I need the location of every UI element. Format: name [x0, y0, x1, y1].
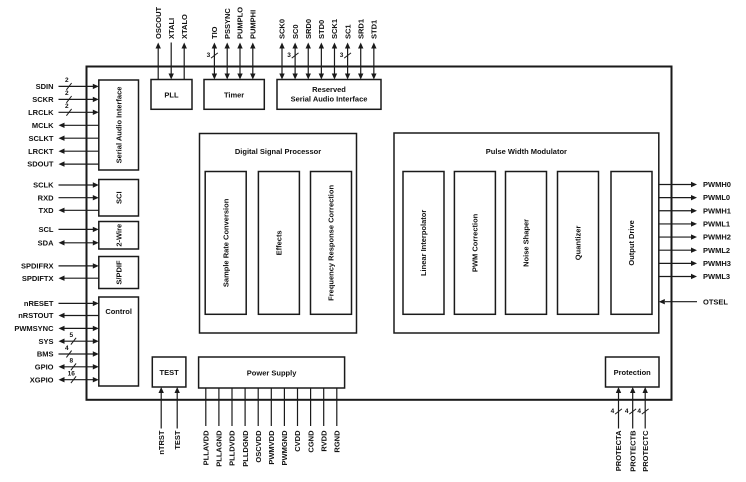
svg-text:OSCVDD: OSCVDD — [254, 430, 263, 463]
svg-text:TIO: TIO — [210, 26, 219, 39]
svg-text:PWML0: PWML0 — [703, 193, 730, 202]
svg-text:OSCOUT: OSCOUT — [154, 6, 163, 39]
svg-text:SDIN: SDIN — [36, 82, 54, 91]
svg-text:Serial Audio Interface: Serial Audio Interface — [114, 87, 123, 164]
svg-text:4: 4 — [65, 345, 69, 352]
svg-text:RXD: RXD — [38, 193, 54, 202]
svg-text:PLLDVDD: PLLDVDD — [228, 430, 237, 466]
svg-text:Control: Control — [105, 307, 132, 316]
svg-text:SC0: SC0 — [291, 24, 300, 39]
svg-text:3: 3 — [340, 52, 344, 59]
svg-text:PWM Correction: PWM Correction — [471, 213, 480, 272]
svg-text:PLLAGND: PLLAGND — [215, 430, 224, 467]
svg-text:PUMPHI: PUMPHI — [249, 10, 258, 39]
svg-text:PLLDGND: PLLDGND — [241, 430, 250, 467]
svg-text:TEST: TEST — [173, 430, 182, 450]
svg-text:Output Drive: Output Drive — [627, 220, 636, 265]
svg-text:Linear Interpolator: Linear Interpolator — [419, 210, 428, 276]
svg-text:2: 2 — [65, 90, 69, 97]
svg-text:nTRST: nTRST — [157, 430, 166, 455]
svg-text:4: 4 — [637, 408, 641, 415]
svg-text:PWML1: PWML1 — [703, 220, 730, 229]
svg-text:2: 2 — [65, 77, 69, 84]
svg-text:PWMH1: PWMH1 — [703, 206, 731, 215]
svg-text:Effects: Effects — [275, 230, 284, 255]
svg-text:Reserved: Reserved — [312, 85, 346, 94]
svg-text:Digital Signal Processor: Digital Signal Processor — [235, 147, 321, 156]
svg-text:CVDD: CVDD — [293, 430, 302, 452]
svg-text:TEST: TEST — [160, 368, 180, 377]
svg-text:SPDIFTX: SPDIFTX — [22, 274, 54, 283]
svg-text:Protection: Protection — [614, 368, 652, 377]
svg-text:PWMH0: PWMH0 — [703, 180, 731, 189]
svg-text:LRCLK: LRCLK — [28, 108, 54, 117]
svg-text:Pulse Width Modulator: Pulse Width Modulator — [486, 147, 567, 156]
svg-text:PWML2: PWML2 — [703, 246, 730, 255]
svg-text:SCLKT: SCLKT — [29, 134, 54, 143]
svg-text:SC1: SC1 — [343, 24, 352, 39]
svg-text:MCLK: MCLK — [32, 121, 54, 130]
svg-text:BMS: BMS — [37, 350, 54, 359]
svg-text:SCI: SCI — [114, 191, 123, 204]
svg-text:PUMPLO: PUMPLO — [236, 7, 245, 39]
svg-text:TXD: TXD — [39, 206, 55, 215]
svg-text:XTALI: XTALI — [167, 18, 176, 39]
svg-text:OTSEL: OTSEL — [703, 297, 728, 306]
svg-text:Serial Audio Interface: Serial Audio Interface — [291, 95, 368, 104]
svg-text:SCLK: SCLK — [33, 181, 54, 190]
svg-text:SDOUT: SDOUT — [27, 160, 54, 169]
svg-text:Power Supply: Power Supply — [247, 369, 297, 378]
svg-text:SRD0: SRD0 — [304, 19, 313, 39]
svg-text:PLL: PLL — [164, 91, 179, 100]
svg-text:STD1: STD1 — [370, 20, 379, 39]
svg-text:SPDIFRX: SPDIFRX — [21, 262, 54, 271]
svg-text:4: 4 — [625, 408, 629, 415]
svg-text:SCKR: SCKR — [32, 95, 54, 104]
svg-text:GPIO: GPIO — [35, 362, 54, 371]
svg-text:5: 5 — [69, 332, 73, 339]
svg-text:XGPIO: XGPIO — [30, 375, 54, 384]
svg-text:Sample Rate Conversion: Sample Rate Conversion — [221, 198, 230, 287]
svg-text:Frequency Response Correction: Frequency Response Correction — [327, 185, 336, 301]
svg-text:SYS: SYS — [38, 337, 53, 346]
svg-text:Timer: Timer — [224, 91, 244, 100]
svg-text:LRCKT: LRCKT — [28, 147, 54, 156]
svg-text:4: 4 — [611, 408, 615, 415]
svg-text:PROTECTB: PROTECTB — [628, 430, 637, 472]
svg-text:STD0: STD0 — [317, 20, 326, 39]
svg-text:PWMVDD: PWMVDD — [267, 430, 276, 465]
svg-text:PWML3: PWML3 — [703, 272, 730, 281]
svg-text:3: 3 — [287, 52, 291, 59]
svg-text:PROTECTC: PROTECTC — [641, 430, 650, 472]
svg-text:PROTECTA: PROTECTA — [614, 430, 623, 471]
svg-text:PWMH2: PWMH2 — [703, 233, 731, 242]
svg-text:8: 8 — [69, 358, 73, 365]
svg-text:PLLAVDD: PLLAVDD — [202, 430, 211, 465]
svg-text:nRSTOUT: nRSTOUT — [18, 311, 54, 320]
svg-text:XTALO: XTALO — [180, 14, 189, 39]
svg-text:nRESET: nRESET — [24, 299, 54, 308]
svg-text:3: 3 — [207, 52, 211, 59]
svg-text:CGND: CGND — [306, 430, 315, 453]
svg-text:SDA: SDA — [38, 238, 54, 247]
svg-text:16: 16 — [68, 371, 76, 378]
svg-text:RGND: RGND — [333, 430, 342, 453]
svg-text:S/PDIF: S/PDIF — [114, 260, 123, 285]
svg-text:PWMH3: PWMH3 — [703, 259, 731, 268]
svg-text:2: 2 — [65, 103, 69, 110]
svg-text:SCK1: SCK1 — [330, 19, 339, 39]
svg-text:PSSYNC: PSSYNC — [223, 8, 232, 39]
svg-text:SCL: SCL — [39, 225, 54, 234]
svg-text:SRD1: SRD1 — [356, 19, 365, 39]
svg-text:PWMGND: PWMGND — [280, 430, 289, 466]
svg-text:PWMSYNC: PWMSYNC — [14, 324, 54, 333]
svg-text:SCK0: SCK0 — [278, 19, 287, 39]
svg-text:2-Wire: 2-Wire — [114, 224, 123, 247]
svg-text:Quantizer: Quantizer — [574, 226, 583, 261]
svg-text:Noise Shaper: Noise Shaper — [522, 219, 531, 267]
svg-text:RVDD: RVDD — [319, 430, 328, 452]
